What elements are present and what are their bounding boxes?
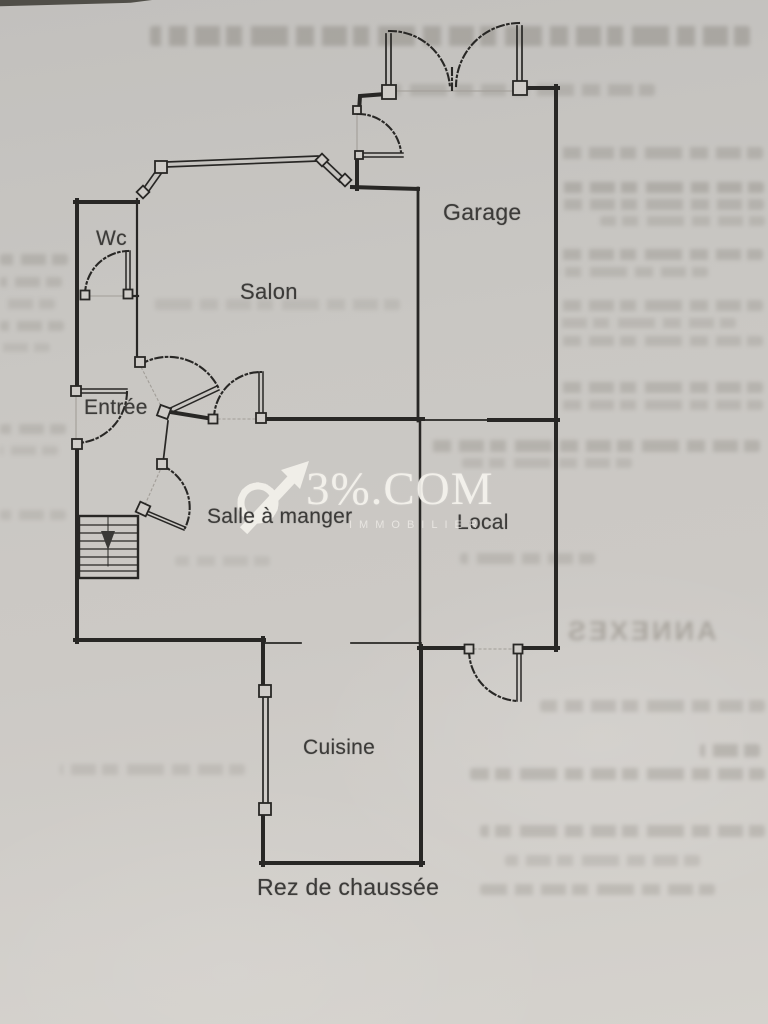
room-label-cuisine: Cuisine: [303, 736, 375, 760]
scanned-floorplan-photo: { "plan": { "title": "Rez de chaussée", …: [0, 0, 768, 1024]
room-label-garage: Garage: [443, 199, 522, 226]
wall-junction-squares: [71, 81, 527, 815]
interior-walls: [163, 420, 490, 643]
room-label-wc: Wc: [96, 227, 127, 251]
room-label-entree: Entrée: [84, 396, 148, 420]
room-label-salon: Salon: [240, 279, 298, 305]
watermark-tagline: IMMOBILIER: [349, 519, 484, 531]
door-leaves: [79, 153, 521, 701]
floor-title: Rez de chaussée: [257, 874, 439, 901]
door-opening-lines: [76, 91, 518, 649]
watermark-brand: 3%.COM: [306, 462, 493, 516]
staircase: [79, 516, 138, 578]
